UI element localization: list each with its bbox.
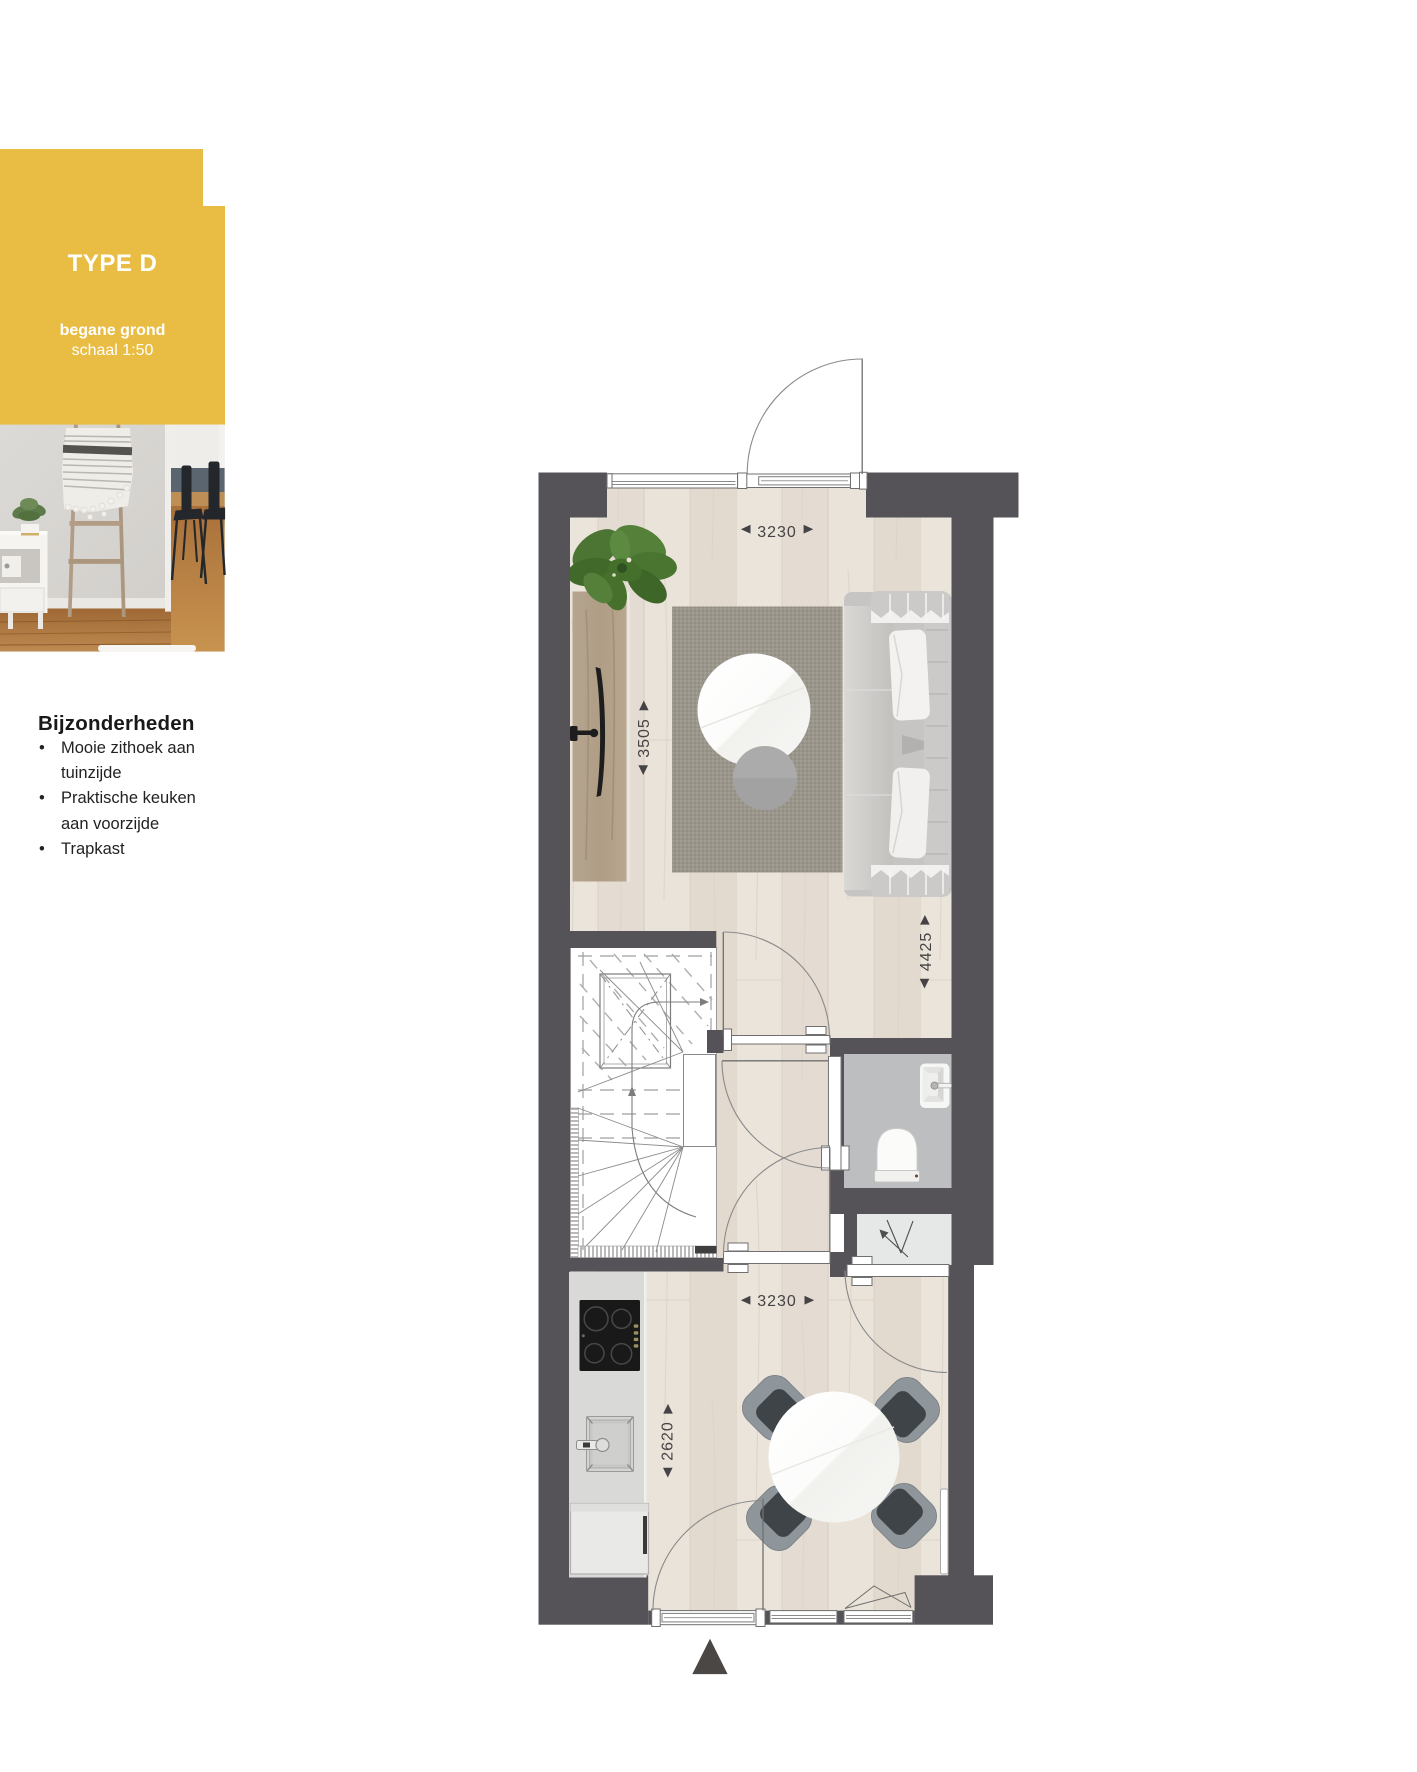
svg-text:3230: 3230 bbox=[757, 1293, 797, 1310]
svg-text:3505: 3505 bbox=[636, 718, 653, 758]
svg-text:2620: 2620 bbox=[660, 1421, 677, 1461]
svg-text:3230: 3230 bbox=[757, 524, 797, 541]
svg-text:4425: 4425 bbox=[918, 932, 935, 972]
